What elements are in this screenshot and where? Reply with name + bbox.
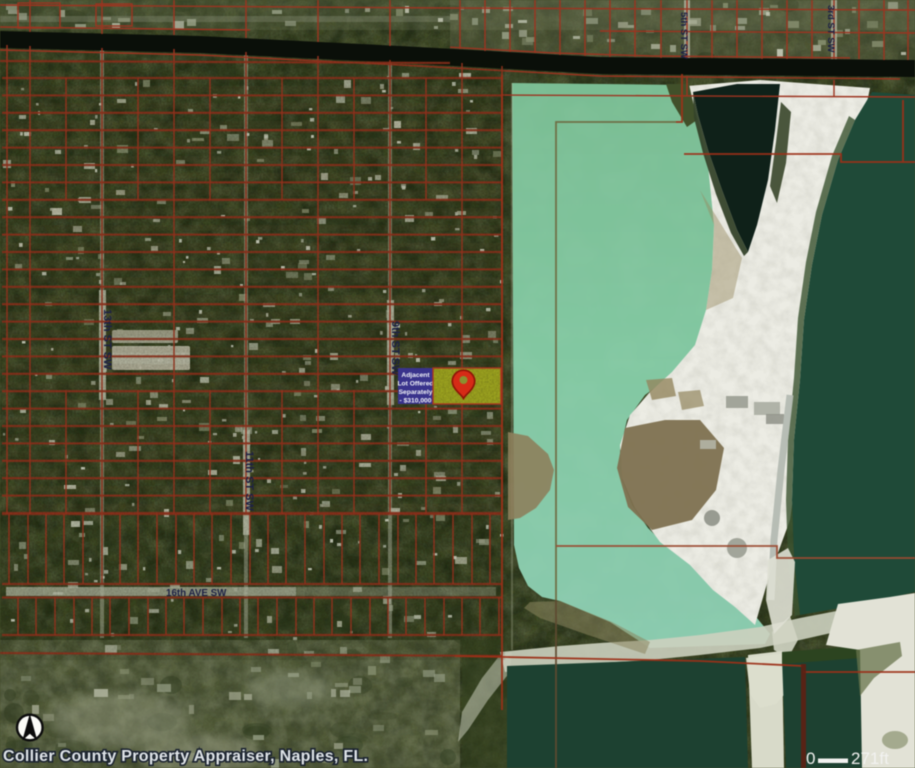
svg-text:11th ST SW: 11th ST SW — [243, 451, 255, 512]
svg-text:5th ST SW: 5th ST SW — [678, 12, 689, 59]
svg-text:16th AVE SW: 16th AVE SW — [166, 588, 227, 599]
svg-text:- $310,000: - $310,000 — [400, 398, 432, 405]
svg-text:3rd ST SW: 3rd ST SW — [825, 5, 836, 53]
svg-text:Lot Offered: Lot Offered — [397, 381, 433, 388]
svg-text:271ft: 271ft — [851, 749, 889, 768]
svg-text:Adjacent: Adjacent — [401, 372, 430, 379]
svg-text:9th ST SW: 9th ST SW — [389, 321, 401, 376]
svg-text:Collier County Property Apprai: Collier County Property Appraiser, Naple… — [3, 748, 368, 765]
svg-text:13th ST SW: 13th ST SW — [101, 309, 113, 370]
svg-text:0: 0 — [806, 749, 815, 768]
svg-text:Separately: Separately — [399, 389, 433, 396]
